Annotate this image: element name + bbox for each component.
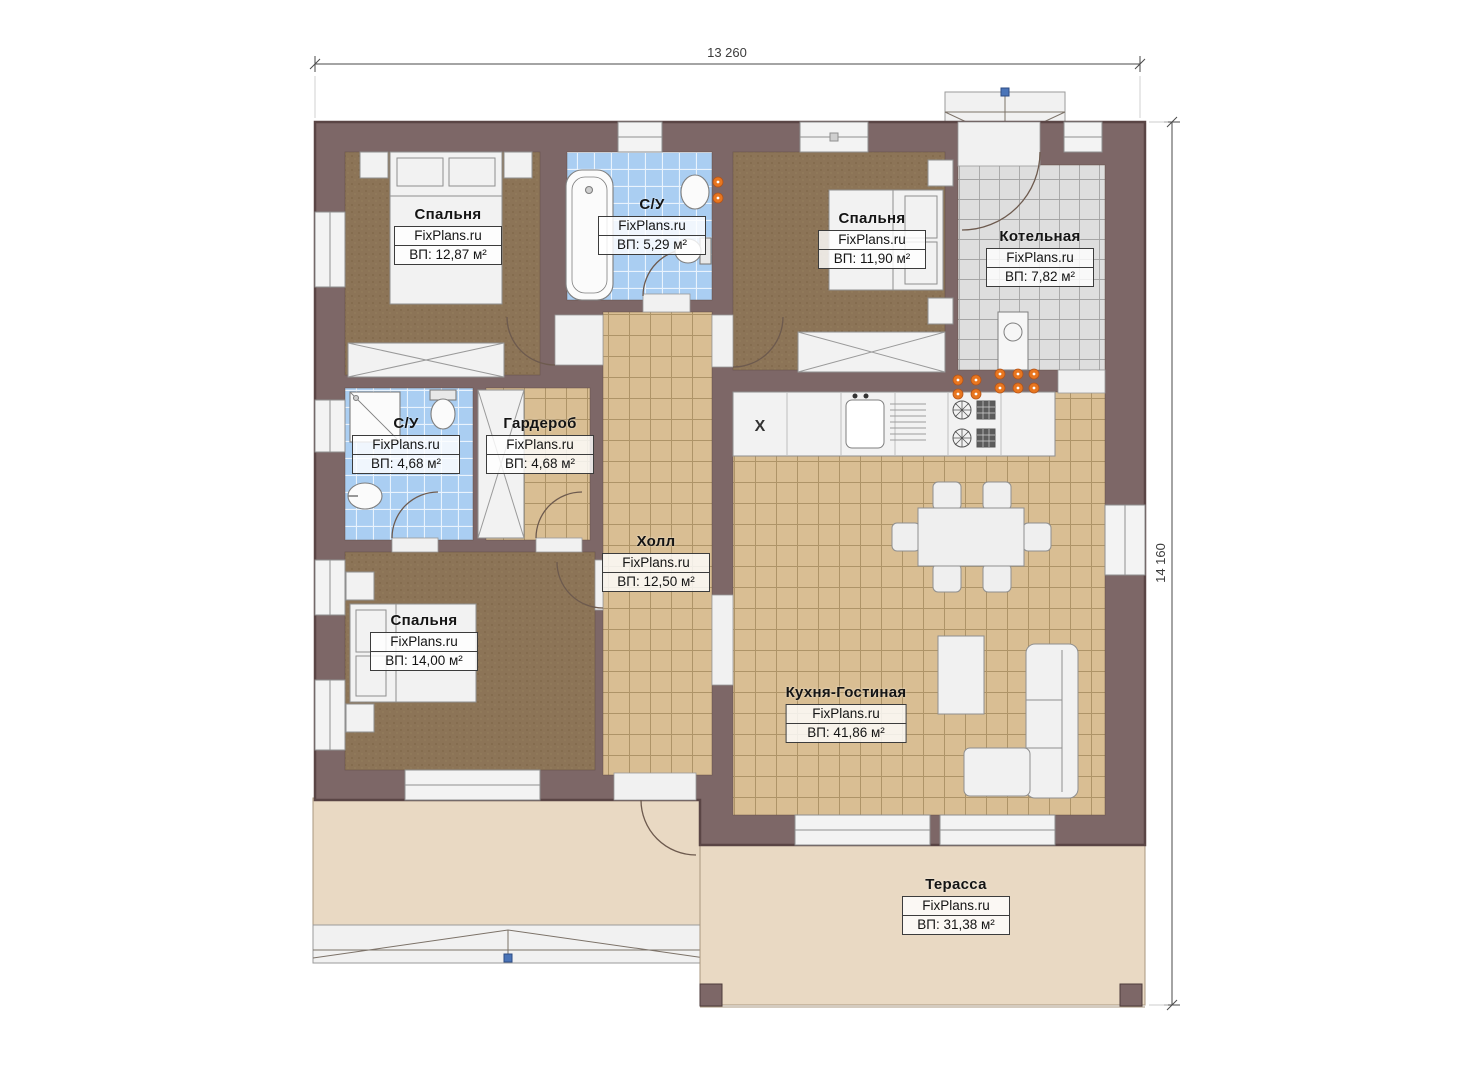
room-name: Спальня xyxy=(370,612,478,629)
terrace-column xyxy=(700,984,722,1006)
dining-table xyxy=(918,508,1024,566)
nightstand xyxy=(346,572,374,600)
area-box: ВП: 12,87 м² xyxy=(394,245,502,265)
brand-box: FixPlans.ru xyxy=(370,632,478,652)
brand-box: FixPlans.ru xyxy=(598,216,706,236)
window xyxy=(315,560,345,615)
area-box: ВП: 5,29 м² xyxy=(598,235,706,255)
sofa-chaise xyxy=(964,748,1030,796)
room-name: Холл xyxy=(602,533,710,550)
terrace-column xyxy=(1120,984,1142,1006)
window xyxy=(1064,122,1102,152)
brand-box: FixPlans.ru xyxy=(786,704,907,724)
room-name: Спальня xyxy=(818,210,926,227)
door-opening xyxy=(555,315,603,365)
boiler-room-equipment xyxy=(998,312,1028,370)
wardrobe-cabinet xyxy=(348,343,504,377)
room-name: Кухня-Гостиная xyxy=(786,684,907,701)
pillow xyxy=(449,158,495,186)
window xyxy=(1105,505,1145,575)
brand-box: FixPlans.ru xyxy=(986,248,1094,268)
chair xyxy=(933,564,961,592)
brand-box: FixPlans.ru xyxy=(352,435,460,455)
door-opening xyxy=(536,538,582,552)
brand-box: FixPlans.ru xyxy=(602,553,710,573)
chair xyxy=(892,523,920,551)
window xyxy=(315,680,345,750)
area-box: ВП: 41,86 м² xyxy=(786,723,907,743)
boiler-kitchen-passage xyxy=(1058,370,1105,393)
door-opening xyxy=(614,773,696,800)
nightstand xyxy=(360,152,388,178)
floor-plan-svg: X xyxy=(0,0,1474,1080)
canopy-node xyxy=(504,954,512,962)
chair xyxy=(1023,523,1051,551)
room-label-bedroom-2: Спальня FixPlans.ru ВП: 11,90 м² xyxy=(818,210,926,269)
canopy-node xyxy=(1001,88,1009,96)
window xyxy=(315,400,345,452)
dimension-width-label: 13 260 xyxy=(707,45,747,60)
nightstand xyxy=(928,160,953,186)
window xyxy=(405,770,540,800)
area-box: ВП: 4,68 м² xyxy=(352,454,460,474)
nightstand xyxy=(346,704,374,732)
nightstand xyxy=(504,152,532,178)
wardrobe-cabinet xyxy=(798,332,945,372)
sink xyxy=(348,483,382,509)
room-label-bathroom-1: С/У FixPlans.ru ВП: 5,29 м² xyxy=(598,196,706,255)
pillow xyxy=(397,158,443,186)
window xyxy=(618,122,662,152)
area-box: ВП: 11,90 м² xyxy=(818,249,926,269)
room-label-bedroom-1: Спальня FixPlans.ru ВП: 12,87 м² xyxy=(394,206,502,265)
room-name: С/У xyxy=(598,196,706,213)
room-label-wardrobe: Гардероб FixPlans.ru ВП: 4,68 м² xyxy=(486,415,594,474)
glazed-door xyxy=(795,815,930,845)
area-box: ВП: 12,50 м² xyxy=(602,572,710,592)
tv-stand xyxy=(938,636,984,714)
room-name: Спальня xyxy=(394,206,502,223)
door-opening xyxy=(712,315,733,367)
fridge-marker: X xyxy=(755,418,766,435)
brand-box: FixPlans.ru xyxy=(902,896,1010,916)
room-label-bedroom-3: Спальня FixPlans.ru ВП: 14,00 м² xyxy=(370,612,478,671)
chair xyxy=(933,482,961,510)
area-box: ВП: 14,00 м² xyxy=(370,651,478,671)
brand-box: FixPlans.ru xyxy=(486,435,594,455)
brand-box: FixPlans.ru xyxy=(394,226,502,246)
room-label-boiler-room: Котельная FixPlans.ru ВП: 7,82 м² xyxy=(986,228,1094,287)
dimension-height-label: 14 160 xyxy=(1153,543,1168,583)
brand-box: FixPlans.ru xyxy=(818,230,926,250)
area-box: ВП: 7,82 м² xyxy=(986,267,1094,287)
floor-plan-page: X xyxy=(0,0,1474,1080)
room-name: Котельная xyxy=(986,228,1094,245)
chair xyxy=(983,564,1011,592)
area-box: ВП: 31,38 м² xyxy=(902,915,1010,935)
dimension-right: 14 160 xyxy=(1149,117,1180,1010)
hall-kitchen-passage xyxy=(712,595,733,685)
door-opening xyxy=(643,294,690,312)
area-box: ВП: 4,68 м² xyxy=(486,454,594,474)
room-name: С/У xyxy=(352,415,460,432)
nightstand xyxy=(928,298,953,324)
entrance-opening xyxy=(958,122,1040,166)
window xyxy=(315,212,345,287)
room-label-bathroom-2: С/У FixPlans.ru ВП: 4,68 м² xyxy=(352,415,460,474)
room-label-hall: Холл FixPlans.ru ВП: 12,50 м² xyxy=(602,533,710,592)
room-name: Гардероб xyxy=(486,415,594,432)
chair xyxy=(983,482,1011,510)
door-opening xyxy=(392,538,438,552)
room-label-kitchen-living: Кухня-Гостиная FixPlans.ru ВП: 41,86 м² xyxy=(786,684,907,743)
kitchen-counter: X xyxy=(733,392,1055,456)
glazed-door xyxy=(940,815,1055,845)
room-name: Терасса xyxy=(902,876,1010,893)
room-label-terrace: Терасса FixPlans.ru ВП: 31,38 м² xyxy=(902,876,1010,935)
window xyxy=(800,122,868,152)
